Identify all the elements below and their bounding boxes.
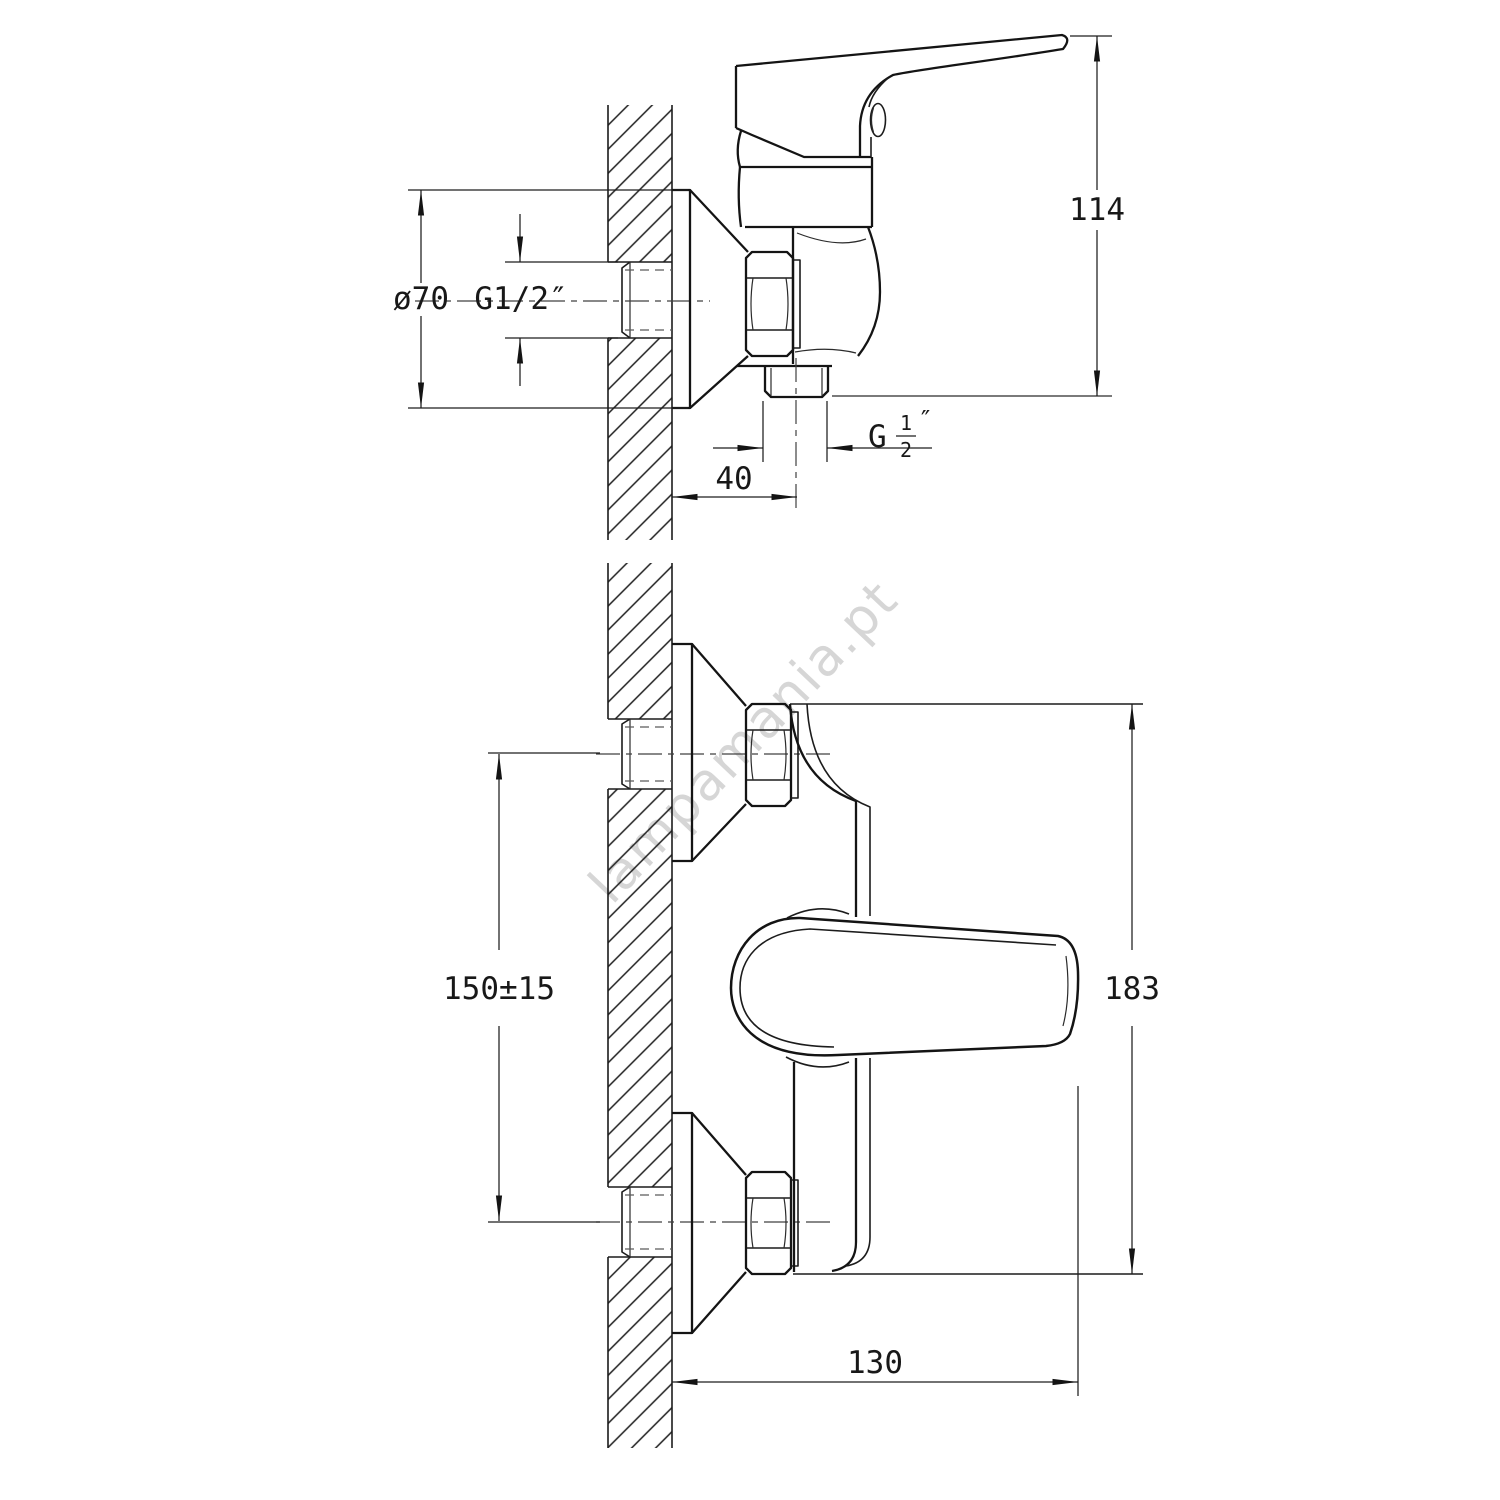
dim-label-outlet-thread-numerator: 1 xyxy=(900,411,912,435)
wall-hatch-lower xyxy=(608,338,672,540)
dim-label-depth: 130 xyxy=(847,1345,903,1381)
dim-label-overall-height: 183 xyxy=(1104,971,1160,1007)
technical-drawing-page: lampamania.pt xyxy=(0,0,1500,1500)
wall-section xyxy=(608,563,672,1448)
wall-hatch-upper xyxy=(608,563,672,719)
wall-hatch-upper xyxy=(608,105,672,262)
lever-handle-front xyxy=(731,918,1078,1055)
dim-label-height: 114 xyxy=(1069,192,1125,228)
dim-label-outlet-thread-prefix: G xyxy=(868,419,887,455)
shower-mixer-dimensional-drawing: lampamania.pt xyxy=(0,0,1500,1500)
dim-label-outlet-thread-unit: ″ xyxy=(918,405,933,434)
handle-outline xyxy=(731,918,1078,1055)
dim-label-wall-thread: G1/2″ xyxy=(474,281,567,317)
dim-label-flange-diameter: ø70 xyxy=(393,281,449,317)
wall-hatch-lower xyxy=(608,1257,672,1448)
dim-label-inlet-spacing: 150±15 xyxy=(443,971,555,1007)
wall-hatch-middle xyxy=(608,789,672,1187)
dim-label-offset: 40 xyxy=(715,461,752,497)
dim-label-outlet-thread-denominator: 2 xyxy=(900,438,912,462)
